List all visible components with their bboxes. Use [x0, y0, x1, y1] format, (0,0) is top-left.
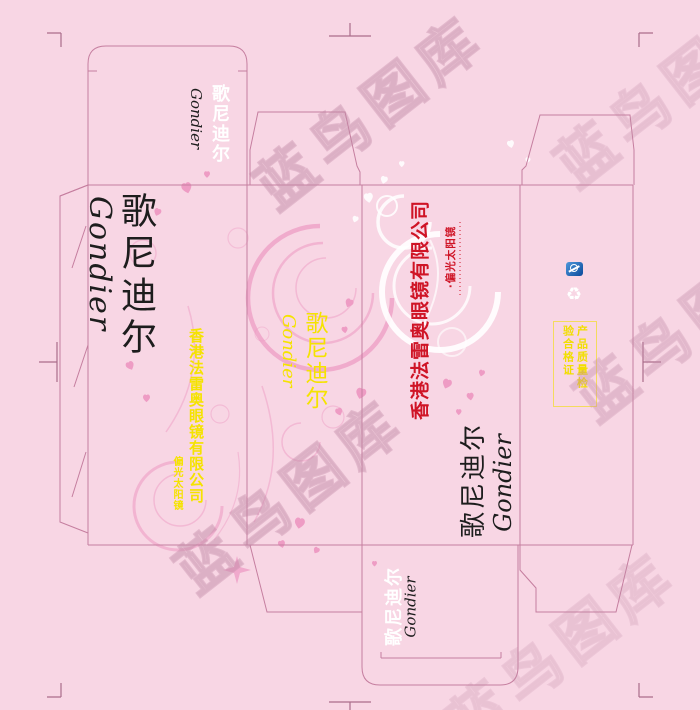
certificate-stamp: 产品质量检 验合格证 [553, 321, 597, 407]
lid-brand-en: Gondier [188, 88, 203, 149]
front-panel-company-name: 香港法雷奥眼镜有限公司 [412, 200, 431, 420]
recycle-icon: ♻ [566, 286, 582, 304]
back-panel-company-name: 香港法雷奥眼镜有限公司 [188, 328, 203, 504]
certificate-column-right: 产品质量检 [577, 325, 588, 403]
floral-ornament-white [351, 140, 530, 356]
side-panel-brand-cn: 歌尼迪尔 [302, 311, 325, 411]
side-panel-brand-en: Gondier [279, 314, 297, 387]
packaging-dieline-canvas: 歌尼迪尔 Gondier 歌尼迪尔 Gondier 香港法雷奥眼镜有限公司 偏光… [0, 0, 700, 710]
uv400-badge-icon [566, 262, 583, 276]
front-panel-brand-en: Gondier [491, 434, 515, 532]
front-panel-tagline: ·偏光太阳镜 [446, 226, 457, 289]
lid-brand-cn: 歌尼迪尔 [210, 84, 228, 164]
certificate-column-left: 验合格证 [563, 325, 574, 403]
back-panel-tagline: 偏光太阳镜 [171, 456, 181, 511]
back-panel-brand-en: Gondier [84, 196, 114, 332]
back-panel-brand-cn: 歌尼迪尔 [117, 192, 153, 360]
bottom-flap-brand-en: Gondier [404, 576, 419, 637]
front-panel-brand-cn: 歌尼迪尔 [461, 422, 487, 538]
sparkle-star [223, 556, 251, 584]
